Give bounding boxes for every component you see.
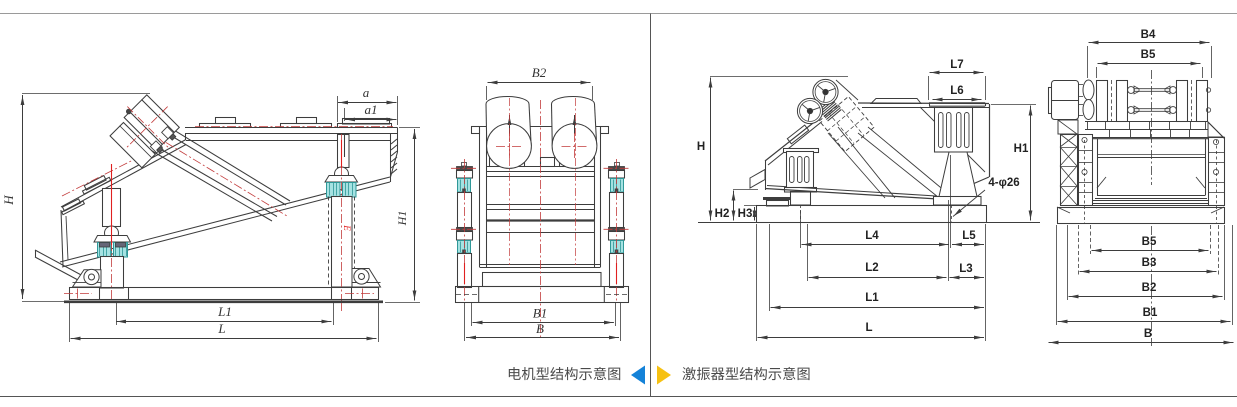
svg-text:H: H — [1, 195, 16, 206]
svg-text:4-φ26: 4-φ26 — [988, 177, 1019, 189]
svg-text:B: B — [536, 321, 544, 336]
svg-text:a1: a1 — [365, 102, 378, 117]
svg-text:L: L — [217, 321, 225, 336]
svg-text:H3: H3 — [738, 208, 753, 220]
svg-text:L1: L1 — [865, 292, 879, 304]
svg-text:L2: L2 — [865, 262, 878, 274]
svg-text:B5: B5 — [1141, 49, 1156, 61]
svg-text:E: E — [342, 224, 352, 231]
svg-text:B1: B1 — [533, 306, 547, 321]
svg-text:B5: B5 — [1142, 236, 1157, 248]
svg-text:B2: B2 — [532, 65, 547, 80]
svg-text:B: B — [1144, 328, 1152, 340]
svg-text:L3: L3 — [959, 263, 972, 275]
svg-text:B2: B2 — [1142, 282, 1157, 294]
svg-text:L4: L4 — [865, 230, 879, 242]
svg-text:B4: B4 — [1141, 29, 1156, 41]
svg-text:H: H — [697, 141, 705, 153]
svg-text:B3: B3 — [1142, 257, 1157, 269]
svg-text:H2: H2 — [715, 208, 730, 220]
svg-text:a: a — [363, 85, 370, 100]
svg-text:H1: H1 — [1014, 143, 1029, 155]
svg-text:L6: L6 — [950, 85, 963, 97]
svg-text:L1: L1 — [217, 304, 232, 319]
svg-text:L: L — [865, 322, 872, 334]
svg-text:B1: B1 — [1143, 307, 1158, 319]
svg-text:L7: L7 — [950, 59, 963, 71]
svg-text:L5: L5 — [962, 230, 976, 242]
svg-text:H1: H1 — [395, 211, 409, 227]
